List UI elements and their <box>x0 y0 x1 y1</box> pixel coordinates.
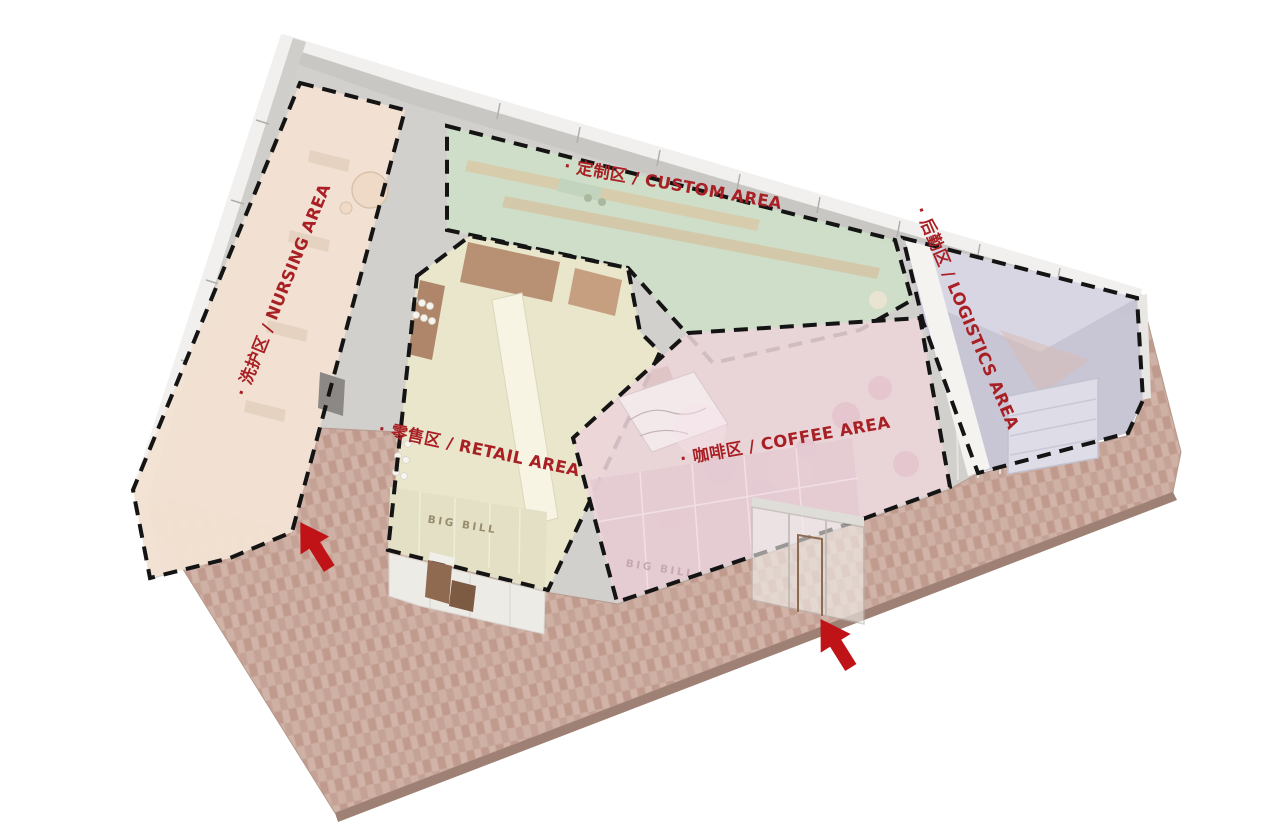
cashier-desk <box>425 560 452 604</box>
diagram-canvas: BIG BILL <box>0 0 1280 830</box>
axonometric-zoning-diagram: BIG BILL <box>0 0 1280 830</box>
